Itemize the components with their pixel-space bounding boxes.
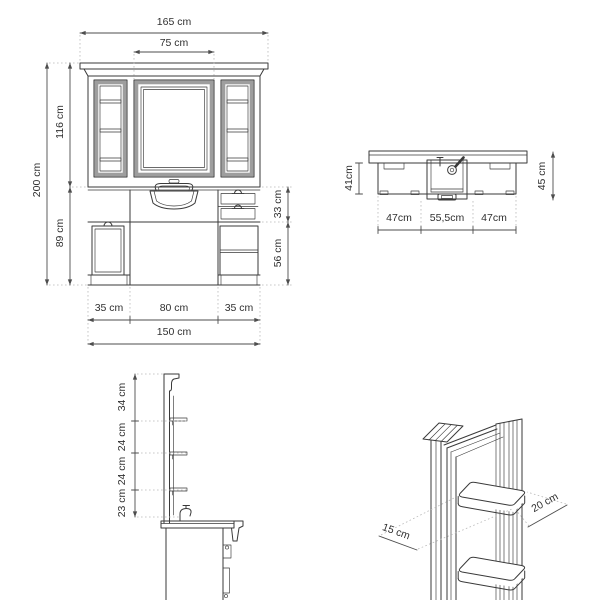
side-shelves xyxy=(170,418,187,495)
dim-label-top-section: 34 cm xyxy=(116,382,128,411)
side-panel xyxy=(164,374,179,523)
dim-label-upper-gap: 24 cm xyxy=(116,422,128,451)
front-post xyxy=(431,440,441,600)
faucet-side xyxy=(180,506,191,522)
dim-label-bottom-right: 35 cm xyxy=(225,302,254,314)
dim-label-plan-center-width: 55,5cm xyxy=(430,212,465,224)
dim-label-right-depth: 45 cm xyxy=(536,161,548,190)
dim-label-bottom-section: 23 cm xyxy=(116,488,128,517)
cabinet-door xyxy=(92,222,124,275)
dim-label-mirror-width: 75 cm xyxy=(160,37,189,49)
mirror-unit-body xyxy=(88,76,260,187)
counter-slab xyxy=(369,151,527,163)
mirror xyxy=(134,80,214,177)
faucet xyxy=(155,180,193,191)
dim-label-upper-height: 116 cm xyxy=(54,105,66,139)
side-dimensions: 34 cm 24 cm 24 cm 23 cm xyxy=(116,374,187,517)
perspective-shelf-2 xyxy=(458,557,526,590)
counter-side xyxy=(161,521,243,541)
dim-label-total-height: 200 cm xyxy=(31,163,43,198)
front-dimensions: 165 cm 75 cm 200 cm 116 cm 89 cm 33 cm 5… xyxy=(31,16,294,346)
drawing-canvas: 165 cm 75 cm 200 cm 116 cm 89 cm 33 cm 5… xyxy=(0,0,600,600)
dim-label-drawer-section: 33 cm xyxy=(272,189,284,218)
cornice xyxy=(80,63,268,76)
dim-label-plan-right-width: 47cm xyxy=(481,212,507,224)
perspective-view: 15 cm 20 cm xyxy=(379,419,567,600)
frame-stile xyxy=(447,448,456,600)
dim-label-bottom-center: 80 cm xyxy=(160,302,189,314)
open-shelf-box xyxy=(220,226,258,275)
dim-label-lower-gap: 24 cm xyxy=(116,456,128,485)
shelf-column-right xyxy=(221,80,254,177)
dim-label-total-width: 165 cm xyxy=(157,16,192,28)
dim-label-left-depth: 41cm xyxy=(343,165,355,191)
dim-label-lower-height: 89 cm xyxy=(54,218,66,247)
dim-label-plan-left-width: 47cm xyxy=(386,212,412,224)
plinth xyxy=(88,275,260,285)
plan-dimensions: 41cm 45 cm 47cm 55,5cm 47cm xyxy=(343,152,553,234)
dim-label-shelf-depth: 15 cm xyxy=(381,521,412,542)
front-view: 165 cm 75 cm 200 cm 116 cm 89 cm 33 cm 5… xyxy=(31,16,294,346)
sink-basin xyxy=(150,191,198,209)
crown-cap xyxy=(423,423,463,442)
side-view: 34 cm 24 cm 24 cm 23 cm xyxy=(116,374,243,600)
technical-drawing-sheet: 165 cm 75 cm 200 cm 116 cm 89 cm 33 cm 5… xyxy=(0,0,600,600)
cabinet-side xyxy=(166,528,231,600)
counter-body xyxy=(378,163,516,194)
shelf-column-left xyxy=(94,80,127,177)
perspective-shelf-1 xyxy=(458,482,526,515)
drawer-stack xyxy=(218,190,258,219)
dim-label-open-section: 56 cm xyxy=(272,238,284,267)
dim-label-base-width: 150 cm xyxy=(157,326,192,338)
plan-view: 41cm 45 cm 47cm 55,5cm 47cm xyxy=(343,151,553,234)
dim-label-bottom-left: 35 cm xyxy=(95,302,124,314)
